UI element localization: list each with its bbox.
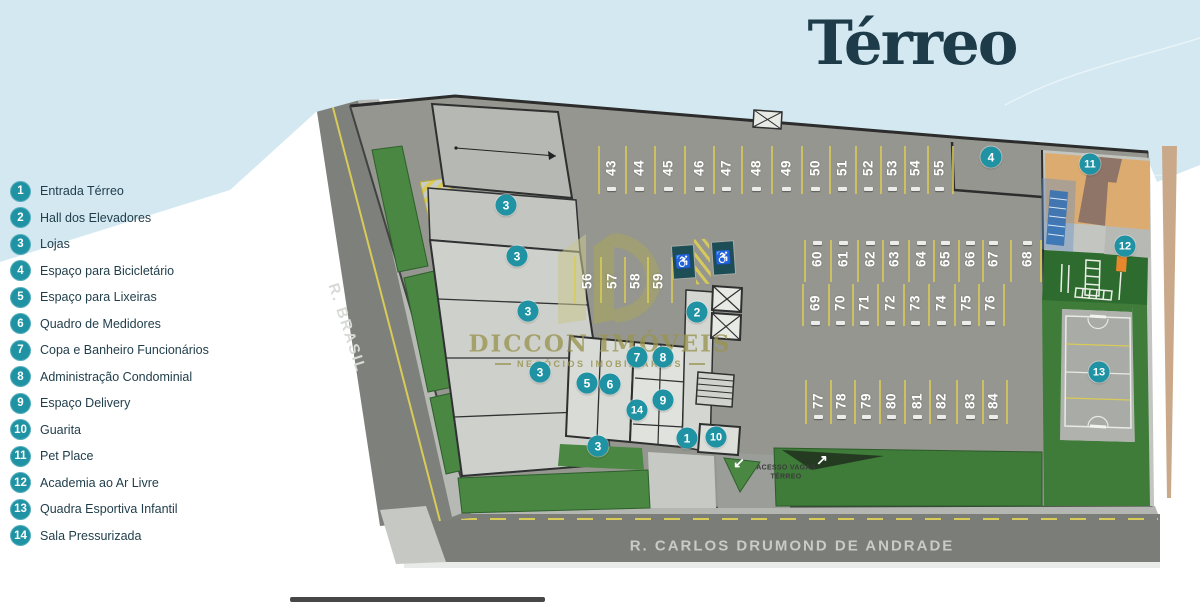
stall-divider-line	[771, 146, 773, 194]
stall-divider-line	[855, 146, 857, 194]
legend-item-label: Sala Pressurizada	[40, 529, 141, 543]
plan-marker-13: 13	[1089, 362, 1110, 383]
wheel-stop	[811, 321, 820, 325]
wheel-stop	[836, 321, 845, 325]
plan-marker-5: 5	[577, 373, 598, 394]
wheel-stop	[752, 187, 761, 191]
wheel-stop	[887, 415, 896, 419]
parking-space-number-45: 45	[661, 160, 676, 176]
parking-space-number-83: 83	[963, 393, 978, 409]
legend-number-badge: 1	[10, 181, 31, 202]
wheel-stop	[813, 241, 822, 245]
stall-divider-line	[903, 284, 905, 326]
wheel-stop	[811, 187, 820, 191]
hatched-no-parking-strip	[694, 239, 711, 285]
parking-space-number-53: 53	[885, 160, 900, 176]
legend-item-label: Pet Place	[40, 449, 94, 463]
legend-item-3: 3Lojas	[10, 231, 209, 258]
plan-marker-4: 4	[981, 147, 1002, 168]
stall-divider-line	[854, 380, 856, 424]
parking-space-number-75: 75	[959, 295, 974, 311]
wheel-stop	[962, 321, 971, 325]
parking-space-number-47: 47	[719, 160, 734, 176]
plan-marker-3: 3	[507, 246, 528, 267]
legend-number-badge: 5	[10, 287, 31, 308]
plan-marker-14: 14	[627, 400, 648, 421]
legend-item-1: 1Entrada Térreo	[10, 178, 209, 205]
parking-space-number-56: 56	[580, 273, 595, 289]
wheel-stop	[913, 415, 922, 419]
stall-divider-line	[852, 284, 854, 326]
arrow-down-left-icon: ↙	[733, 455, 745, 472]
legend-number-badge: 12	[10, 472, 31, 493]
parking-space-number-60: 60	[810, 251, 825, 267]
stall-divider-line	[713, 146, 715, 194]
stall-divider-line	[1010, 240, 1012, 282]
stall-divider-line	[857, 240, 859, 282]
stall-divider-line	[804, 240, 806, 282]
parking-space-number-69: 69	[808, 295, 823, 311]
parking-space-number-78: 78	[834, 393, 849, 409]
parking-space-number-72: 72	[883, 295, 898, 311]
stall-divider-line	[954, 284, 956, 326]
parking-space-number-65: 65	[938, 251, 953, 267]
stall-divider-line	[877, 284, 879, 326]
parking-space-number-46: 46	[692, 160, 707, 176]
stall-divider-line	[830, 240, 832, 282]
legend-number-badge: 9	[10, 393, 31, 414]
watermark-tagline: NEGÓCIOS IMOBILIÁRIOS	[495, 359, 705, 369]
wheel-stop	[935, 187, 944, 191]
parking-space-number-68: 68	[1020, 251, 1035, 267]
wheel-stop	[937, 415, 946, 419]
stall-divider-line	[625, 146, 627, 194]
legend-item-2: 2Hall dos Elevadores	[10, 205, 209, 232]
stall-divider-line	[908, 240, 910, 282]
plan-marker-6: 6	[600, 374, 621, 395]
parking-space-number-57: 57	[605, 273, 620, 289]
stall-divider-line	[600, 257, 602, 303]
wheel-stop	[866, 241, 875, 245]
wheel-stop	[941, 241, 950, 245]
parking-space-number-84: 84	[986, 393, 1001, 409]
stall-divider-line	[830, 380, 832, 424]
bottom-bar	[290, 597, 545, 602]
parking-space-number-81: 81	[910, 393, 925, 409]
stall-divider-line	[684, 146, 686, 194]
wheel-stop	[1023, 241, 1032, 245]
street-label-carlos-drumond: R. CARLOS DRUMOND DE ANDRADE	[630, 538, 955, 555]
parking-space-number-59: 59	[651, 273, 666, 289]
parking-space-number-71: 71	[857, 295, 872, 311]
legend-item-13: 13Quadra Esportiva Infantil	[10, 496, 209, 523]
legend-item-9: 9Espaço Delivery	[10, 390, 209, 417]
parking-space-number-64: 64	[914, 251, 929, 267]
amenity-strip	[1040, 146, 1177, 506]
legend-number-badge: 10	[10, 419, 31, 440]
wheel-stop	[886, 321, 895, 325]
legend-item-4: 4Espaço para Bicicletário	[10, 258, 209, 285]
legend-number-badge: 11	[10, 446, 31, 467]
wheel-stop	[989, 415, 998, 419]
parking-space-number-48: 48	[749, 160, 764, 176]
legend-number-badge: 3	[10, 234, 31, 255]
stall-divider-line	[574, 257, 576, 303]
legend-item-11: 11Pet Place	[10, 443, 209, 470]
stall-divider-line	[801, 146, 803, 194]
parking-space-number-49: 49	[779, 160, 794, 176]
stall-divider-line	[927, 146, 929, 194]
parking-space-number-82: 82	[934, 393, 949, 409]
plan-marker-3: 3	[496, 195, 517, 216]
legend-item-label: Guarita	[40, 423, 81, 437]
legend-item-label: Academia ao Ar Livre	[40, 476, 159, 490]
parking-space-number-80: 80	[884, 393, 899, 409]
parking-space-number-50: 50	[808, 160, 823, 176]
legend-item-12: 12Academia ao Ar Livre	[10, 470, 209, 497]
stall-divider-line	[624, 257, 626, 303]
legend-number-badge: 8	[10, 366, 31, 387]
wheel-stop	[837, 415, 846, 419]
legend-item-14: 14Sala Pressurizada	[10, 523, 209, 550]
stall-divider-line	[882, 240, 884, 282]
stall-divider-line	[958, 240, 960, 282]
plan-marker-7: 7	[627, 347, 648, 368]
plan-marker-10: 10	[706, 427, 727, 448]
plan-marker-3: 3	[518, 301, 539, 322]
parking-space-number-70: 70	[833, 295, 848, 311]
parking-space-number-43: 43	[604, 160, 619, 176]
legend-item-label: Espaço para Bicicletário	[40, 264, 174, 278]
legend-item-label: Espaço para Lixeiras	[40, 290, 157, 304]
wheel-stop	[839, 241, 848, 245]
stall-divider-line	[933, 240, 935, 282]
plan-marker-1: 1	[677, 428, 698, 449]
plan-marker-9: 9	[653, 390, 674, 411]
access-vagas-label: ACESSO VAGAS TÉRREO	[756, 464, 815, 482]
wheel-stop	[937, 321, 946, 325]
stall-divider-line	[598, 146, 600, 194]
wheel-stop	[890, 241, 899, 245]
legend: 1Entrada Térreo2Hall dos Elevadores3Loja…	[10, 178, 209, 549]
stall-divider-line	[982, 380, 984, 424]
stall-divider-line	[952, 146, 954, 194]
legend-item-label: Quadra Esportiva Infantil	[40, 502, 178, 516]
page-title: Térreo	[762, 8, 1062, 79]
legend-item-6: 6Quadro de Medidores	[10, 311, 209, 338]
wheelchair-icon: ♿	[672, 245, 695, 278]
legend-item-label: Administração Condominial	[40, 370, 192, 384]
parking-space-number-74: 74	[934, 295, 949, 311]
wheel-stop	[966, 241, 975, 245]
stall-divider-line	[829, 146, 831, 194]
legend-number-badge: 6	[10, 313, 31, 334]
legend-number-badge: 2	[10, 207, 31, 228]
wheelchair-icon: ♿	[712, 241, 735, 274]
stall-divider-line	[1003, 284, 1005, 326]
parking-space-number-62: 62	[863, 251, 878, 267]
floorplan-page: Térreo 1Entrada Térreo2Hall dos Elevador…	[0, 0, 1200, 602]
legend-number-badge: 4	[10, 260, 31, 281]
plan-marker-3: 3	[530, 362, 551, 383]
parking-space-number-79: 79	[859, 393, 874, 409]
legend-number-badge: 14	[10, 525, 31, 546]
wheel-stop	[911, 321, 920, 325]
wheel-stop	[814, 415, 823, 419]
stall-divider-line	[805, 380, 807, 424]
legend-item-label: Hall dos Elevadores	[40, 211, 151, 225]
legend-number-badge: 7	[10, 340, 31, 361]
plan-marker-3: 3	[588, 436, 609, 457]
legend-item-label: Entrada Térreo	[40, 184, 124, 198]
wheel-stop	[917, 241, 926, 245]
wheel-stop	[838, 187, 847, 191]
legend-item-label: Lojas	[40, 237, 70, 251]
stall-divider-line	[956, 380, 958, 424]
wheel-stop	[635, 187, 644, 191]
parking-space-number-77: 77	[811, 393, 826, 409]
wheel-stop	[607, 187, 616, 191]
legend-item-label: Espaço Delivery	[40, 396, 130, 410]
watermark-brand: DICCON IMÓVEIS	[469, 331, 732, 358]
wheel-stop	[695, 187, 704, 191]
parking-space-number-55: 55	[932, 160, 947, 176]
parking-space-number-61: 61	[836, 251, 851, 267]
parking-space-number-58: 58	[628, 273, 643, 289]
legend-item-8: 8Administração Condominial	[10, 364, 209, 391]
wheel-stop	[722, 187, 731, 191]
plan-marker-8: 8	[653, 347, 674, 368]
wheel-stop	[782, 187, 791, 191]
wheel-stop	[911, 187, 920, 191]
parking-space-number-52: 52	[861, 160, 876, 176]
wheel-stop	[860, 321, 869, 325]
stall-divider-line	[929, 380, 931, 424]
parking-space-number-73: 73	[908, 295, 923, 311]
plan-marker-11: 11	[1080, 154, 1101, 175]
plan-marker-2: 2	[687, 302, 708, 323]
arrow-up-right-icon: ↗	[816, 452, 828, 469]
stall-divider-line	[654, 146, 656, 194]
parking-space-number-51: 51	[835, 160, 850, 176]
stall-divider-line	[879, 380, 881, 424]
parking-space-number-63: 63	[887, 251, 902, 267]
parking-space-number-44: 44	[632, 160, 647, 176]
stall-divider-line	[904, 146, 906, 194]
wheel-stop	[966, 415, 975, 419]
parking-space-number-67: 67	[986, 251, 1001, 267]
legend-item-label: Quadro de Medidores	[40, 317, 161, 331]
wheel-stop	[664, 187, 673, 191]
wheel-stop	[986, 321, 995, 325]
parking-space-number-76: 76	[983, 295, 998, 311]
legend-item-5: 5Espaço para Lixeiras	[10, 284, 209, 311]
wheel-stop	[864, 187, 873, 191]
stall-divider-line	[880, 146, 882, 194]
parking-space-number-66: 66	[963, 251, 978, 267]
stall-divider-line	[828, 284, 830, 326]
stall-divider-line	[741, 146, 743, 194]
plan-marker-12: 12	[1115, 236, 1136, 257]
parking-space-number-54: 54	[908, 160, 923, 176]
wheel-stop	[862, 415, 871, 419]
legend-item-7: 7Copa e Banheiro Funcionários	[10, 337, 209, 364]
stall-divider-line	[802, 284, 804, 326]
legend-number-badge: 13	[10, 499, 31, 520]
stall-divider-line	[982, 240, 984, 282]
stall-divider-line	[1006, 380, 1008, 424]
legend-item-label: Copa e Banheiro Funcionários	[40, 343, 209, 357]
stall-divider-line	[928, 284, 930, 326]
legend-item-10: 10Guarita	[10, 417, 209, 444]
wheel-stop	[888, 187, 897, 191]
stall-divider-line	[647, 257, 649, 303]
stall-divider-line	[904, 380, 906, 424]
stall-divider-line	[1040, 240, 1042, 282]
wheel-stop	[989, 241, 998, 245]
stall-divider-line	[978, 284, 980, 326]
